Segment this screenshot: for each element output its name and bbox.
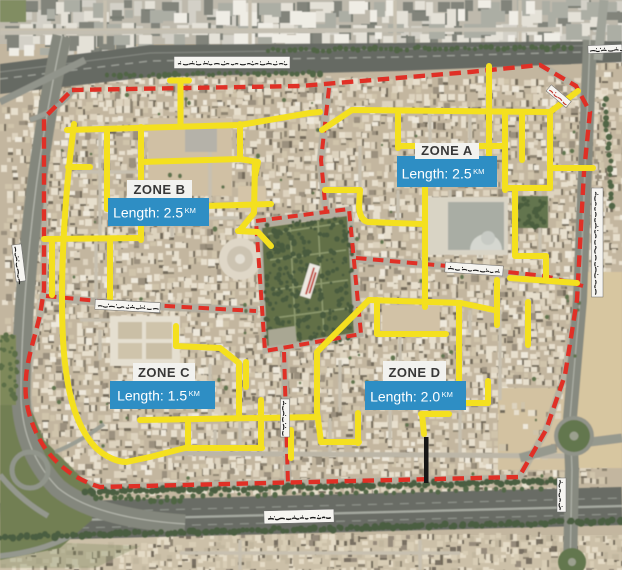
svg-text:ZONE C: ZONE C: [138, 365, 190, 380]
svg-text:ZONE B: ZONE B: [133, 182, 185, 197]
svg-text:ZONE A: ZONE A: [421, 143, 473, 158]
svg-text:ZONE D: ZONE D: [388, 365, 440, 380]
